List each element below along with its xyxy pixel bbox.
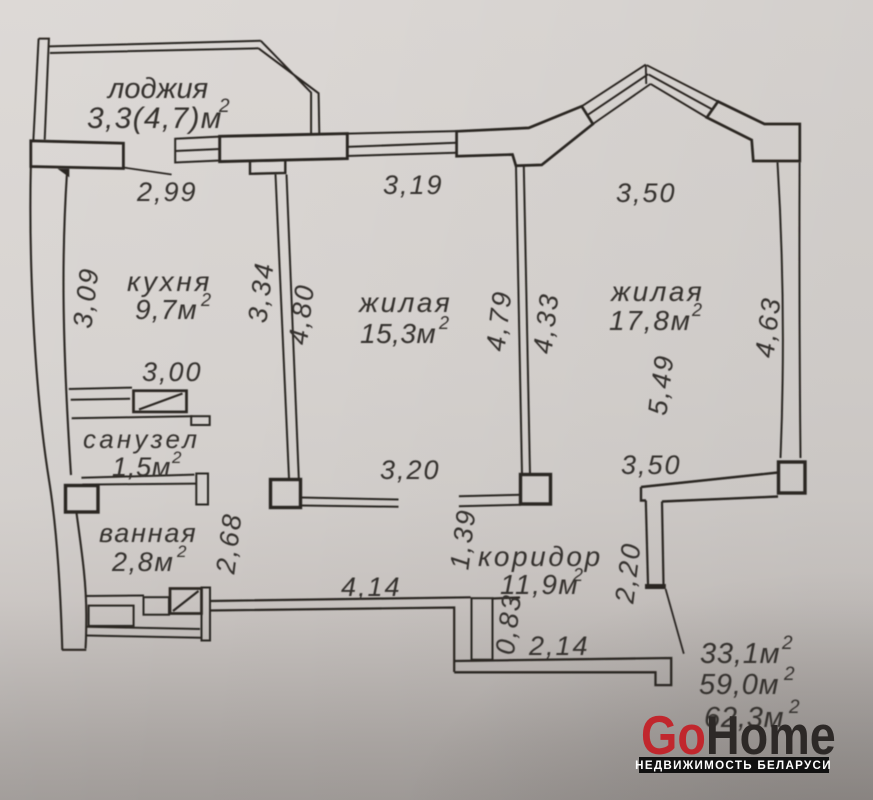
svg-text:3,20: 3,20: [380, 455, 441, 485]
svg-text:4,80: 4,80: [283, 282, 320, 347]
svg-text:5,49: 5,49: [642, 352, 679, 417]
svg-text:2: 2: [572, 565, 583, 585]
svg-text:2: 2: [783, 664, 795, 685]
svg-text:2,8м: 2,8м: [111, 547, 174, 577]
svg-text:GoHome: GoHome: [641, 704, 836, 765]
svg-text:2: 2: [176, 542, 187, 561]
svg-text:4,14: 4,14: [341, 572, 402, 602]
svg-text:2: 2: [438, 313, 449, 333]
svg-text:2: 2: [218, 96, 230, 117]
svg-text:жилая: жилая: [609, 276, 704, 307]
svg-text:кухня: кухня: [127, 266, 212, 297]
svg-text:17,8м: 17,8м: [609, 305, 692, 336]
svg-text:2: 2: [781, 633, 793, 654]
svg-text:лоджия: лоджия: [106, 73, 208, 105]
svg-text:коридор: коридор: [478, 541, 603, 572]
svg-text:3,34: 3,34: [242, 260, 279, 325]
svg-text:санузел: санузел: [83, 424, 200, 454]
svg-text:2: 2: [171, 448, 182, 467]
svg-text:3,00: 3,00: [142, 357, 203, 387]
svg-text:3,19: 3,19: [383, 170, 444, 200]
svg-text:2: 2: [200, 290, 211, 310]
svg-text:2: 2: [691, 300, 702, 320]
svg-text:33,1м: 33,1м: [700, 638, 780, 670]
svg-text:4,33: 4,33: [527, 291, 564, 356]
svg-text:3,50: 3,50: [616, 178, 677, 208]
svg-text:0,83: 0,83: [490, 592, 527, 657]
svg-text:3,09: 3,09: [67, 265, 104, 330]
svg-text:3,3(4,7)м: 3,3(4,7)м: [87, 102, 223, 135]
svg-text:1,39: 1,39: [444, 507, 481, 572]
svg-text:3,50: 3,50: [621, 450, 682, 480]
svg-text:9,7м: 9,7м: [135, 294, 198, 325]
svg-text:59,0м: 59,0м: [699, 669, 779, 701]
svg-text:2,20: 2,20: [609, 540, 646, 606]
svg-text:2,99: 2,99: [136, 177, 198, 207]
svg-text:2,68: 2,68: [210, 511, 247, 577]
svg-text:15,3м: 15,3м: [360, 318, 436, 349]
svg-text:4,63: 4,63: [749, 295, 786, 360]
svg-text:1,5м: 1,5м: [112, 452, 171, 482]
svg-text:НЕДВИЖИМОСТЬ БЕЛАРУСИ: НЕДВИЖИМОСТЬ БЕЛАРУСИ: [635, 759, 832, 772]
svg-text:4,79: 4,79: [480, 288, 517, 353]
svg-text:жилая: жилая: [357, 287, 452, 318]
svg-text:2,14: 2,14: [528, 631, 590, 661]
